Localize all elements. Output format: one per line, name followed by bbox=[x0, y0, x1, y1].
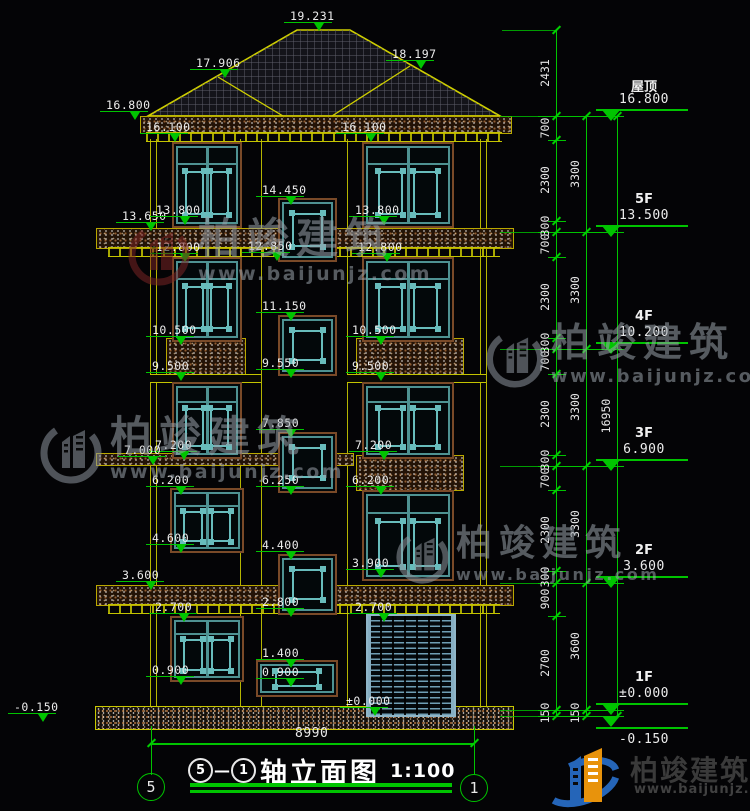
elevation-value: 10.500 bbox=[352, 323, 397, 337]
elevation-mark-line bbox=[8, 713, 56, 714]
elevation-mark-triangle bbox=[379, 452, 389, 460]
dimension-value: 150 bbox=[538, 703, 552, 724]
elevation-mark-line bbox=[346, 486, 394, 487]
elevation-value: -0.150 bbox=[14, 700, 59, 714]
axis-bubble: 1 bbox=[460, 774, 488, 802]
elevation-mark-line bbox=[150, 216, 198, 217]
window-lattice bbox=[210, 171, 229, 215]
elevation-mark-triangle bbox=[148, 457, 158, 465]
elevation-mark-triangle bbox=[176, 337, 186, 345]
dimension-value: 3300 bbox=[568, 276, 582, 304]
dimension-value: 700 bbox=[538, 118, 552, 139]
elevation-value: 13.800 bbox=[355, 203, 400, 217]
wall-line bbox=[486, 139, 487, 706]
floor-elevation: 3.600 bbox=[596, 559, 692, 574]
elevation-value: 9.500 bbox=[152, 359, 189, 373]
elevation-mark-triangle bbox=[286, 313, 296, 321]
elevation-mark-triangle bbox=[376, 337, 386, 345]
elevation-value: 1.400 bbox=[262, 646, 299, 660]
dimension-value: 3300 bbox=[568, 160, 582, 188]
elevation-mark-triangle bbox=[176, 373, 186, 381]
elevation-value: 17.906 bbox=[196, 56, 241, 70]
elevation-mark-line bbox=[340, 707, 388, 708]
floor-marker-triangle bbox=[602, 226, 620, 237]
elevation-mark-line bbox=[256, 312, 304, 313]
elevation-mark-line bbox=[256, 678, 304, 679]
elevation-mark-triangle bbox=[176, 545, 186, 553]
dimension-value: 300 bbox=[538, 567, 552, 588]
elevation-mark-line bbox=[256, 196, 304, 197]
elevation-mark-triangle bbox=[38, 714, 48, 722]
title-axis-bubble-5: 5 bbox=[188, 758, 213, 783]
axis-extension-line bbox=[474, 726, 475, 775]
elevation-mark-line bbox=[146, 544, 194, 545]
elevation-drawing-canvas: 5 — 1 轴立面图 1:100 柏竣建筑 www.baijunjz.com bbox=[0, 0, 750, 811]
floor-elevation: -0.150 bbox=[596, 732, 692, 747]
elevation-value: 12.800 bbox=[358, 240, 403, 254]
elevation-mark-triangle bbox=[376, 570, 386, 578]
extension-line bbox=[500, 349, 538, 350]
title-underline bbox=[190, 783, 452, 787]
elevation-value: ±0.000 bbox=[346, 694, 391, 708]
elevation-mark-line bbox=[336, 133, 384, 134]
dimension-value: 2300 bbox=[538, 400, 552, 428]
elevation-value: 6.250 bbox=[262, 473, 299, 487]
window-lattice bbox=[211, 639, 231, 671]
elevation-mark-triangle bbox=[314, 23, 324, 31]
elevation-mark-triangle bbox=[179, 614, 189, 622]
extension-line bbox=[500, 716, 538, 717]
dimension-value: 700 bbox=[538, 234, 552, 255]
dimension-value: 150 bbox=[568, 703, 582, 724]
extension-line bbox=[500, 583, 538, 584]
elevation-mark-line bbox=[256, 369, 304, 370]
extension-line bbox=[500, 466, 538, 467]
elevation-mark-triangle bbox=[286, 197, 296, 205]
elevation-mark-triangle bbox=[286, 487, 296, 495]
window-lattice bbox=[413, 408, 439, 447]
window-lattice bbox=[210, 286, 229, 329]
elevation-mark-triangle bbox=[176, 677, 186, 685]
elevation-mark-line bbox=[150, 253, 198, 254]
elevation-mark-triangle bbox=[146, 223, 156, 231]
title-dash: — bbox=[214, 761, 230, 780]
window-lattice bbox=[211, 511, 231, 542]
elevation-mark-triangle bbox=[130, 112, 140, 120]
window-lattice bbox=[210, 408, 229, 447]
dimension-value: 2431 bbox=[538, 59, 552, 87]
floor-elevation: ±0.000 bbox=[596, 686, 692, 701]
elevation-mark-line bbox=[349, 613, 397, 614]
floor-marker-triangle bbox=[602, 577, 620, 588]
elevation-value: 9.550 bbox=[262, 356, 299, 370]
elevation-value: 16.100 bbox=[146, 120, 191, 134]
extension-line bbox=[500, 232, 538, 233]
cornice-band bbox=[146, 132, 502, 142]
elevation-value: 12.850 bbox=[248, 239, 293, 253]
floor-name: 4F bbox=[596, 309, 692, 324]
wall-line bbox=[156, 139, 157, 706]
title-axis-bubble-1: 1 bbox=[231, 758, 256, 783]
elevation-value: 11.150 bbox=[262, 299, 307, 313]
floor-elevation: 16.800 bbox=[596, 92, 692, 107]
elevation-value: 6.200 bbox=[152, 473, 189, 487]
dimension-value: 900 bbox=[538, 589, 552, 610]
floor-marker-triangle bbox=[602, 704, 620, 715]
elevation-mark-triangle bbox=[376, 373, 386, 381]
dimension-value: 3600 bbox=[568, 632, 582, 660]
elevation-mark-triangle bbox=[179, 452, 189, 460]
floor-name: 1F bbox=[596, 670, 692, 685]
watermark-url: www.baijunjz.com bbox=[551, 366, 750, 387]
dimension-value: 2300 bbox=[538, 516, 552, 544]
axis-bubble: 5 bbox=[137, 773, 165, 801]
watermark-logo-icon bbox=[40, 422, 102, 484]
elevation-mark-triangle bbox=[370, 708, 380, 716]
floor-marker-triangle bbox=[602, 110, 620, 121]
elevation-mark-line bbox=[346, 372, 394, 373]
elevation-mark-line bbox=[352, 253, 400, 254]
elevation-value: 0.900 bbox=[152, 663, 189, 677]
elevation-mark-line bbox=[118, 456, 166, 457]
elevation-mark-line bbox=[386, 60, 434, 61]
elevation-value: 14.450 bbox=[262, 183, 307, 197]
floor-elevation: 10.200 bbox=[596, 325, 692, 340]
elevation-mark-line bbox=[242, 252, 290, 253]
elevation-mark-line bbox=[346, 336, 394, 337]
elevation-value: 7.850 bbox=[262, 416, 299, 430]
dimension-value: 700 bbox=[538, 351, 552, 372]
elevation-mark-line bbox=[116, 222, 164, 223]
elevation-value: 12.800 bbox=[156, 240, 201, 254]
elevation-mark-triangle bbox=[379, 614, 389, 622]
extension-line bbox=[500, 710, 538, 711]
elevation-mark-line bbox=[146, 336, 194, 337]
elevation-mark-triangle bbox=[366, 134, 376, 142]
dimension-value: 3300 bbox=[568, 510, 582, 538]
elevation-mark-line bbox=[284, 22, 332, 23]
floor-marker-line bbox=[596, 727, 688, 729]
elevation-value: 4.400 bbox=[262, 538, 299, 552]
extension-line bbox=[502, 30, 556, 31]
elevation-mark-line bbox=[346, 569, 394, 570]
baijun-brand-logo: 柏竣建筑 www.baijunjz.com bbox=[540, 746, 628, 811]
floor-name: 2F bbox=[596, 543, 692, 558]
elevation-mark-line bbox=[349, 216, 397, 217]
title-scale: 1:100 bbox=[390, 760, 455, 782]
elevation-mark-line bbox=[256, 608, 304, 609]
window-lattice bbox=[413, 286, 439, 329]
floor-name: 3F bbox=[596, 426, 692, 441]
dimension-value: 2300 bbox=[538, 283, 552, 311]
elevation-value: 3.900 bbox=[352, 556, 389, 570]
elevation-mark-triangle bbox=[286, 370, 296, 378]
elevation-value: 2.700 bbox=[355, 600, 392, 614]
elevation-value: 19.231 bbox=[290, 9, 335, 23]
elevation-mark-triangle bbox=[220, 70, 230, 78]
elevation-mark-line bbox=[256, 486, 304, 487]
elevation-mark-line bbox=[146, 676, 194, 677]
dimension-value: 3300 bbox=[568, 393, 582, 421]
elevation-value: 6.200 bbox=[352, 473, 389, 487]
elevation-mark-line bbox=[256, 429, 304, 430]
dimension-value: 700 bbox=[538, 468, 552, 489]
watermark-logo-icon bbox=[486, 330, 544, 388]
elevation-value: 7.000 bbox=[124, 443, 161, 457]
elevation-value: 13.800 bbox=[156, 203, 201, 217]
brand-logo-icon bbox=[540, 746, 628, 808]
elevation-value: 10.500 bbox=[152, 323, 197, 337]
elevation-mark-triangle bbox=[170, 134, 180, 142]
elevation-mark-triangle bbox=[180, 217, 190, 225]
elevation-value: 16.800 bbox=[106, 98, 151, 112]
floor-marker-triangle bbox=[602, 716, 620, 727]
window-lattice bbox=[413, 171, 439, 215]
floor-elevation: 6.900 bbox=[596, 442, 692, 457]
elevation-mark-line bbox=[256, 551, 304, 552]
brand-logo-url: www.baijunjz.com bbox=[634, 782, 750, 797]
elevation-value: 4.600 bbox=[152, 531, 189, 545]
elevation-value: 7.200 bbox=[355, 438, 392, 452]
elevation-mark-triangle bbox=[379, 217, 389, 225]
elevation-mark-triangle bbox=[286, 552, 296, 560]
elevation-value: 3.600 bbox=[122, 568, 159, 582]
elevation-mark-line bbox=[349, 451, 397, 452]
dimension-line bbox=[586, 116, 587, 716]
wall-line bbox=[347, 139, 348, 706]
floor-marker-triangle bbox=[602, 460, 620, 471]
elevation-mark-line bbox=[190, 69, 238, 70]
extension-line bbox=[500, 116, 538, 117]
floor-elevation: 13.500 bbox=[596, 208, 692, 223]
elevation-mark-triangle bbox=[286, 679, 296, 687]
elevation-mark-line bbox=[256, 659, 304, 660]
elevation-value: 2.700 bbox=[155, 600, 192, 614]
elevation-mark-line bbox=[116, 581, 164, 582]
wall-line bbox=[480, 139, 481, 706]
title-underline-2 bbox=[190, 790, 452, 793]
window-lattice bbox=[292, 213, 322, 246]
bottom-dimension-line bbox=[151, 743, 474, 745]
elevation-value: 16.100 bbox=[342, 120, 387, 134]
elevation-value: 18.197 bbox=[392, 47, 437, 61]
elevation-mark-triangle bbox=[376, 487, 386, 495]
elevation-mark-triangle bbox=[176, 487, 186, 495]
elevation-mark-triangle bbox=[286, 609, 296, 617]
elevation-value: 9.500 bbox=[352, 359, 389, 373]
elevation-mark-triangle bbox=[180, 254, 190, 262]
elevation-mark-line bbox=[146, 372, 194, 373]
elevation-mark-line bbox=[100, 111, 148, 112]
floor-marker-triangle bbox=[602, 343, 620, 354]
elevation-mark-triangle bbox=[416, 61, 426, 69]
dimension-value: 2700 bbox=[538, 649, 552, 677]
elevation-value: 0.900 bbox=[262, 665, 299, 679]
floor-name: 5F bbox=[596, 192, 692, 207]
elevation-mark-triangle bbox=[286, 430, 296, 438]
window-lattice bbox=[413, 521, 439, 568]
elevation-mark-line bbox=[140, 133, 188, 134]
dimension-value: 2300 bbox=[538, 166, 552, 194]
elevation-mark-triangle bbox=[146, 582, 156, 590]
elevation-mark-line bbox=[146, 486, 194, 487]
elevation-value: 2.800 bbox=[262, 595, 299, 609]
elevation-mark-line bbox=[149, 613, 197, 614]
axis-extension-line bbox=[151, 726, 152, 775]
bottom-dimension-value: 8990 bbox=[295, 726, 328, 741]
elevation-mark-triangle bbox=[272, 253, 282, 261]
elevation-mark-triangle bbox=[382, 254, 392, 262]
